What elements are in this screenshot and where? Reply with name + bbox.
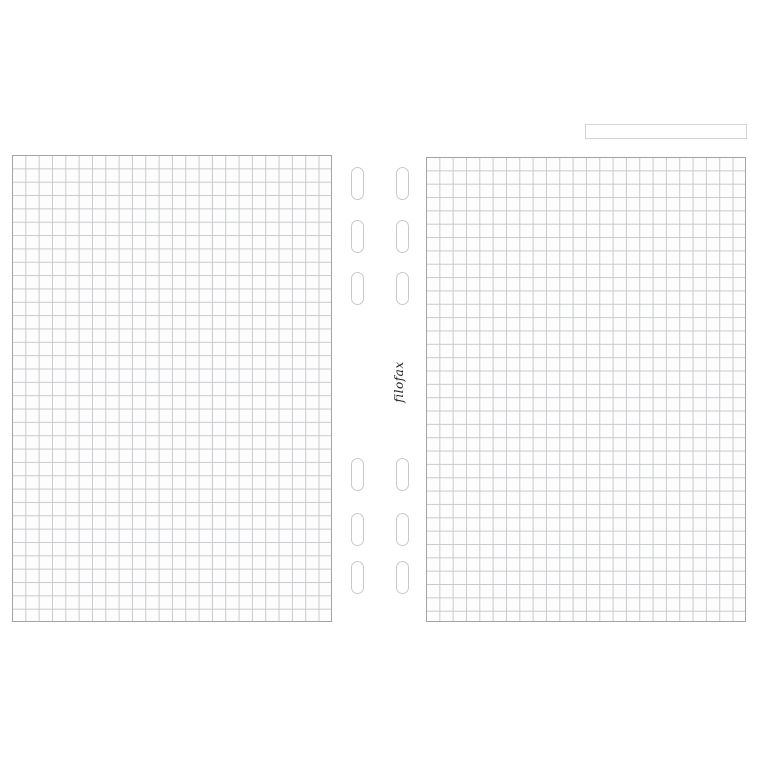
label-box: [585, 124, 747, 139]
punch-hole: [396, 513, 409, 546]
punch-hole: [396, 220, 409, 253]
punch-hole: [351, 458, 364, 491]
punch-hole: [396, 272, 409, 305]
punch-hole: [351, 513, 364, 546]
product-image-canvas: filofax: [0, 0, 760, 760]
grid-page-right: [426, 157, 746, 622]
brand-logo: filofax: [392, 361, 406, 402]
punch-hole: [396, 561, 409, 594]
punch-hole: [351, 220, 364, 253]
punch-hole: [351, 272, 364, 305]
punch-hole: [351, 561, 364, 594]
punch-hole: [351, 167, 364, 200]
grid-page-left: [12, 155, 332, 622]
punch-hole: [396, 458, 409, 491]
punch-hole: [396, 167, 409, 200]
